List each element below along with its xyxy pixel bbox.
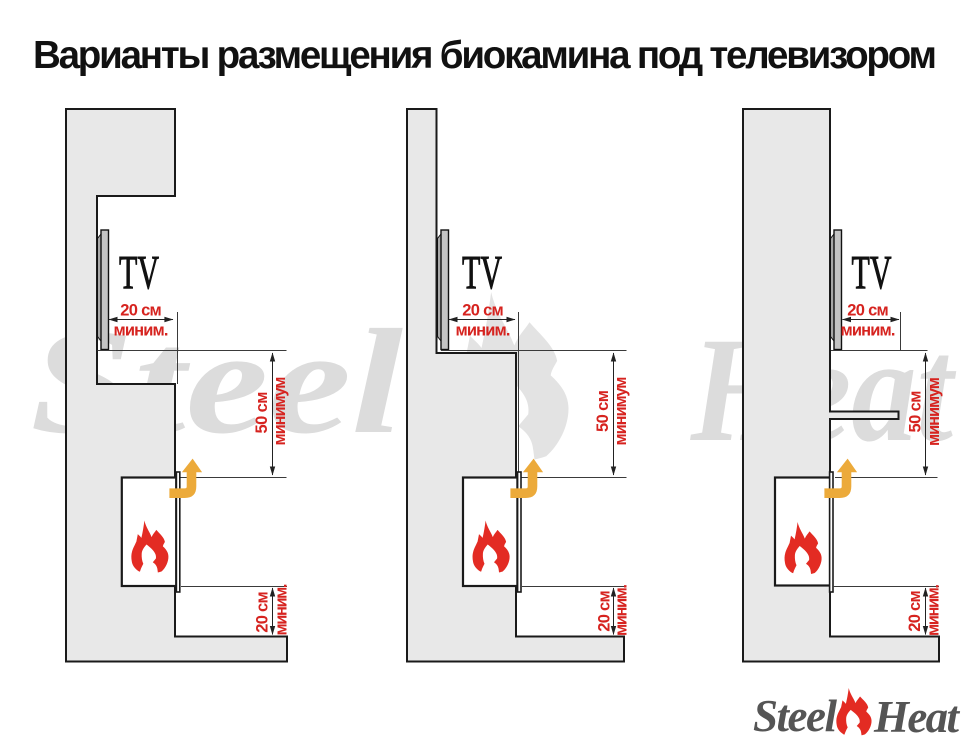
- svg-text:минимум: минимум: [925, 377, 943, 446]
- svg-text:20 см: 20 см: [120, 302, 162, 320]
- svg-text:20 см: 20 см: [462, 302, 504, 320]
- svg-text:TV: TV: [119, 247, 159, 300]
- svg-text:50 см: 50 см: [907, 391, 925, 433]
- svg-text:50 см: 50 см: [253, 392, 271, 434]
- svg-text:миним.: миним.: [841, 322, 896, 340]
- svg-text:минимум: минимум: [271, 377, 289, 446]
- svg-text:TV: TV: [852, 247, 892, 300]
- svg-text:миним.: миним.: [613, 584, 631, 636]
- svg-text:Варианты размещения биокамина: Варианты размещения биокамина под телеви…: [33, 34, 937, 77]
- svg-text:20 см: 20 см: [906, 590, 924, 632]
- svg-text:TV: TV: [462, 247, 502, 300]
- svg-text:Heat: Heat: [873, 692, 960, 742]
- svg-text:миним.: миним.: [273, 584, 291, 636]
- svg-text:20 см: 20 см: [847, 302, 889, 320]
- svg-text:миним.: миним.: [456, 322, 511, 340]
- svg-text:Steel: Steel: [753, 691, 837, 741]
- svg-text:20 см: 20 см: [596, 590, 614, 632]
- svg-text:20 см: 20 см: [254, 591, 272, 633]
- svg-text:миним.: миним.: [114, 322, 169, 340]
- svg-text:миним.: миним.: [925, 584, 943, 636]
- svg-text:минимум: минимум: [612, 377, 630, 446]
- svg-text:50 см: 50 см: [594, 390, 612, 432]
